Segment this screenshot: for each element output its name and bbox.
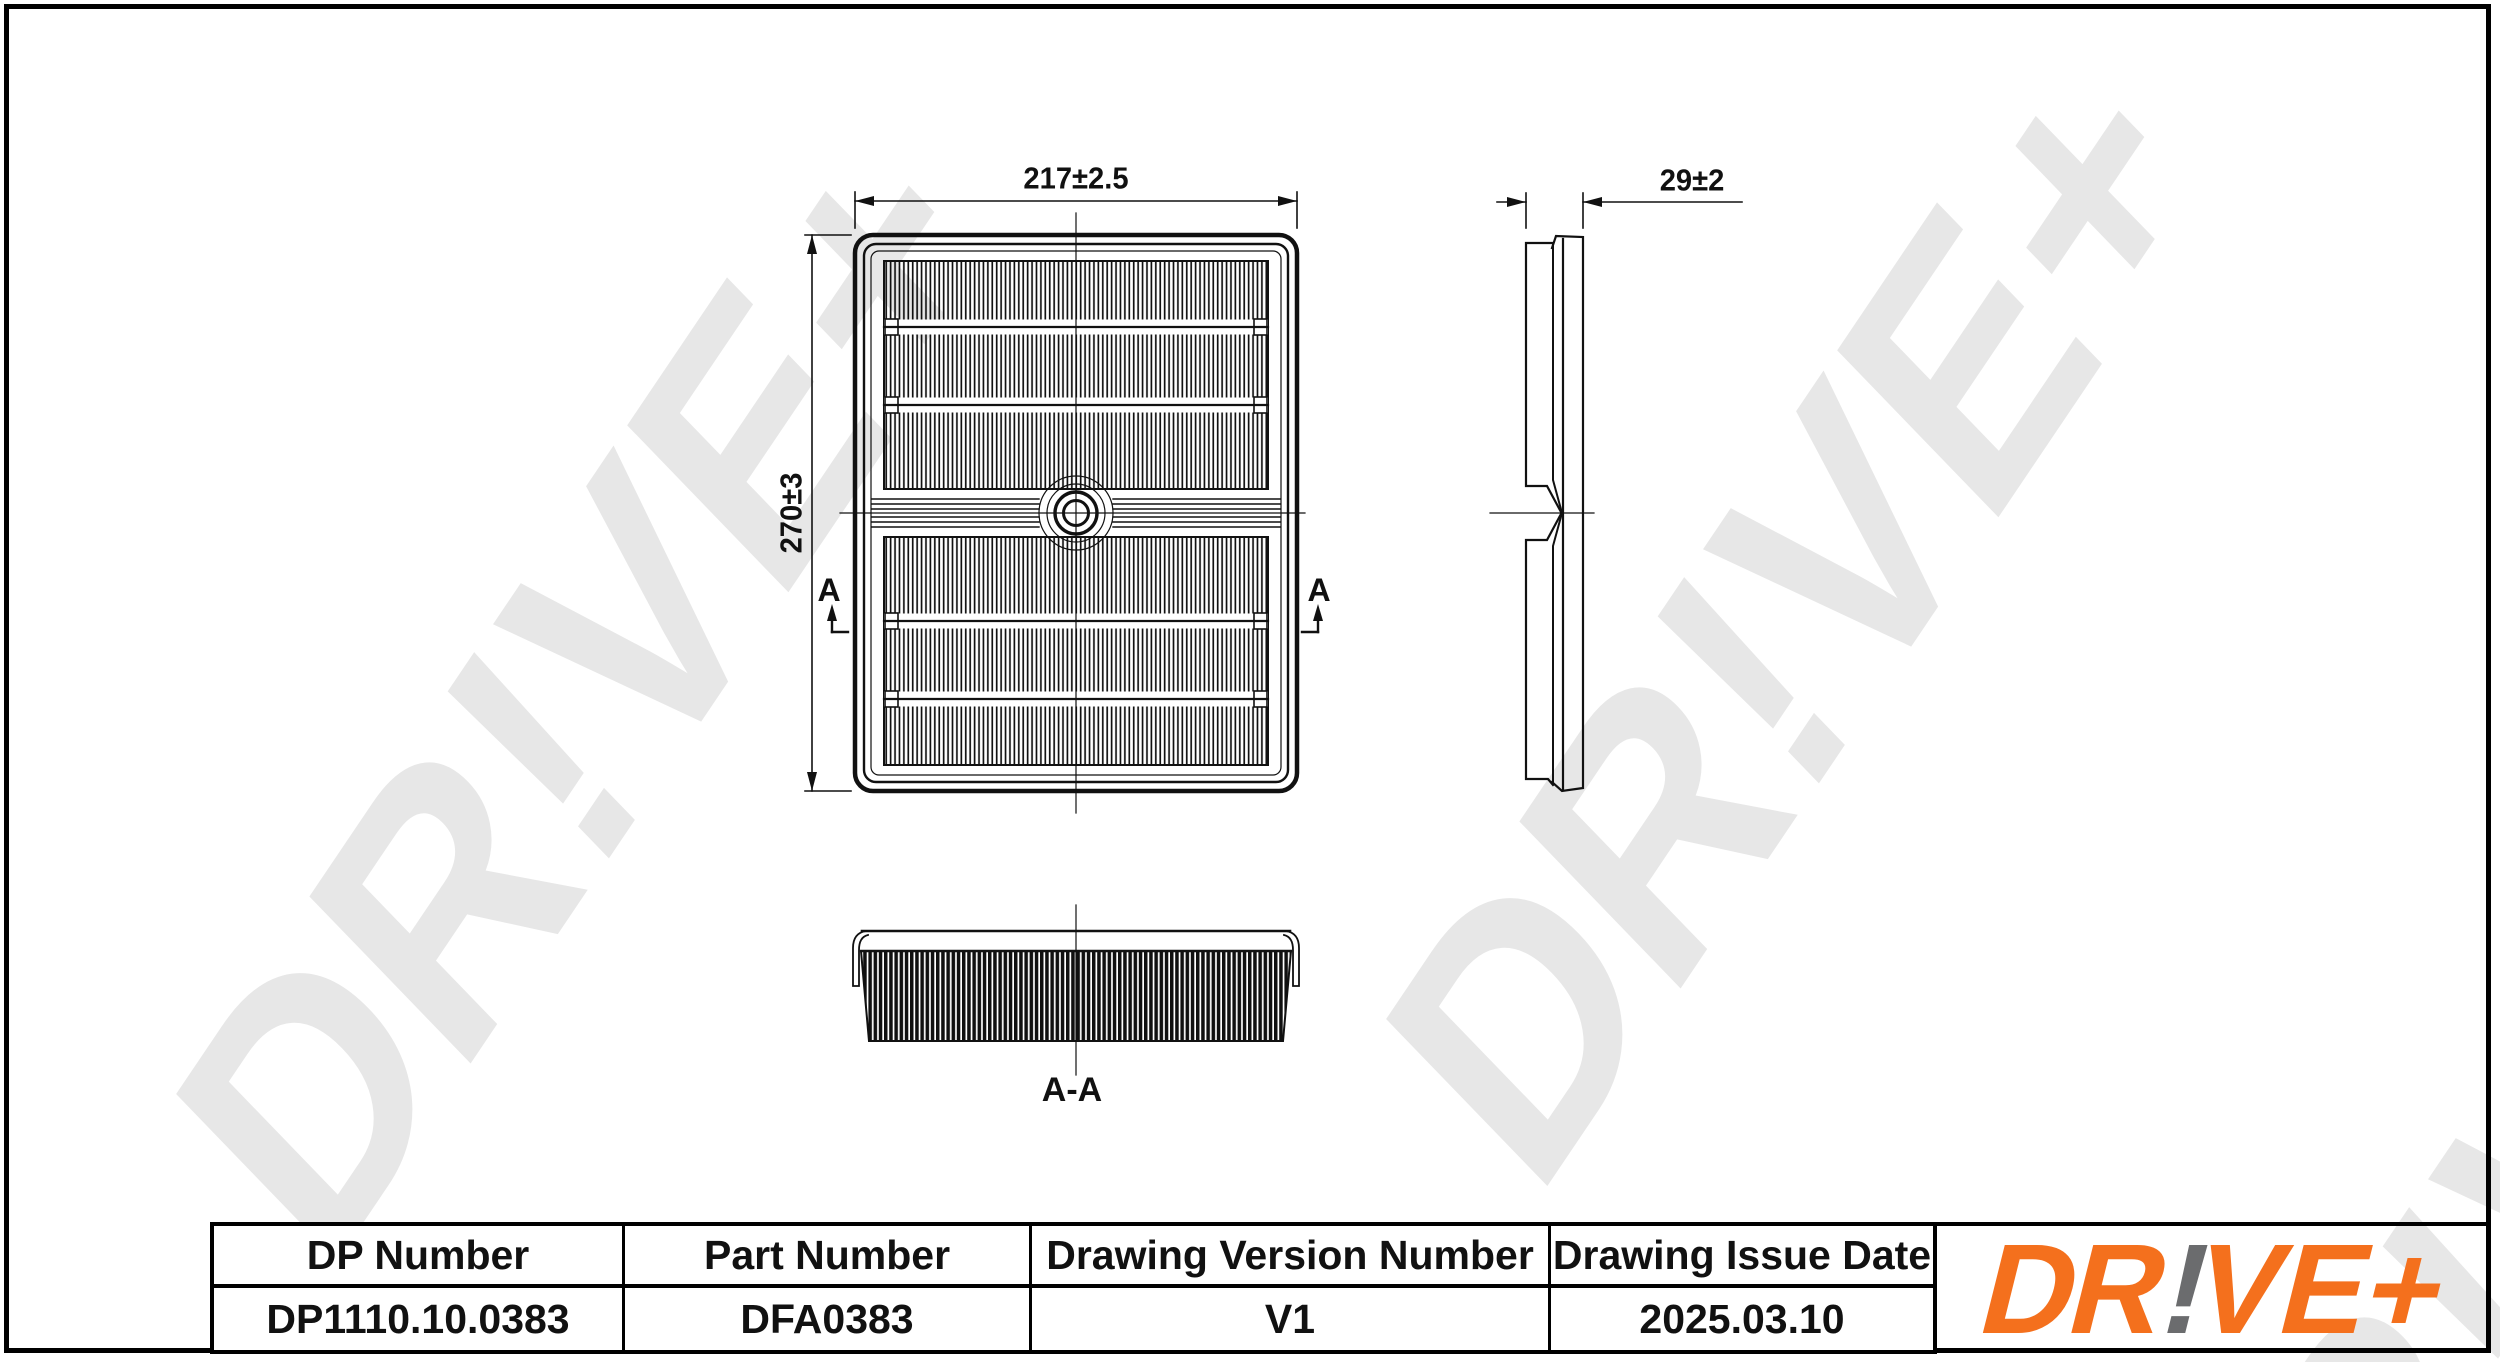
title-block-value-part-number: DFA0383 xyxy=(625,1288,1032,1350)
title-block-header-drawing-version: Drawing Version Number xyxy=(1032,1226,1551,1288)
title-block: DP Number Part Number Drawing Version Nu… xyxy=(210,1222,1937,1354)
drawing-linework xyxy=(0,0,2500,1362)
title-block-value-dp-number: DP1110.10.0383 xyxy=(214,1288,625,1350)
section-arrow-right xyxy=(1302,604,1323,632)
brand-logo-box: DR!VE+ xyxy=(1937,1222,2491,1353)
section-letter-left: A xyxy=(817,574,840,606)
technical-drawing-page: DR!VE+ DR!VE+ DR!VE+ xyxy=(0,0,2500,1362)
title-block-header-issue-date: Drawing Issue Date xyxy=(1551,1226,1933,1288)
logo-text-ve-plus: VE+ xyxy=(2180,1218,2461,1361)
title-block-value-drawing-version: V1 xyxy=(1032,1288,1551,1350)
dimension-depth xyxy=(1497,193,1742,228)
section-view-label: A-A xyxy=(1042,1073,1102,1107)
front-view xyxy=(840,213,1305,813)
section-letter-right: A xyxy=(1307,574,1330,606)
dimension-label-width: 217±2.5 xyxy=(1023,163,1128,194)
title-block-header-dp-number: DP Number xyxy=(214,1226,625,1288)
title-block-header-part-number: Part Number xyxy=(625,1226,1032,1288)
dimension-label-depth: 29±2 xyxy=(1660,165,1725,196)
title-block-value-issue-date: 2025.03.10 xyxy=(1551,1288,1933,1350)
dimension-label-height: 270±3 xyxy=(776,473,807,554)
section-arrow-left xyxy=(827,604,848,632)
section-view xyxy=(853,905,1299,1075)
logo-text-dr: DR xyxy=(1967,1218,2180,1361)
side-view xyxy=(1490,236,1594,791)
brand-logo: DR!VE+ xyxy=(1969,1226,2460,1354)
